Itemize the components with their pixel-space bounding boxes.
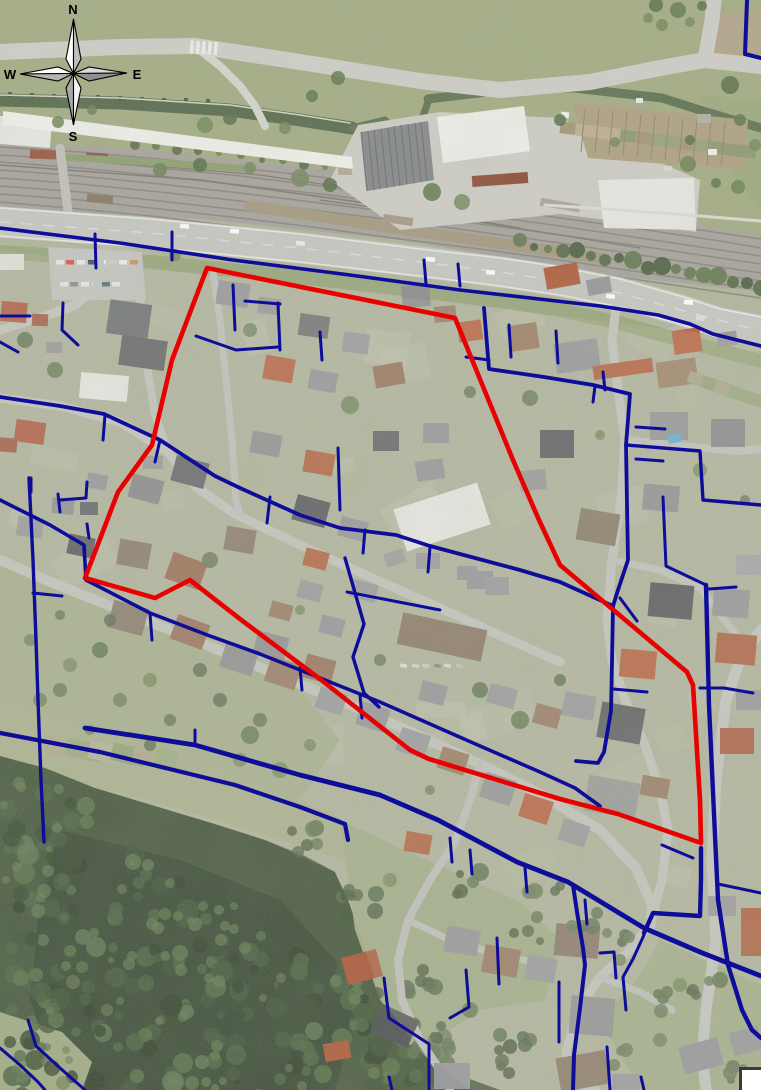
svg-text:E: E [133, 67, 142, 82]
svg-text:W: W [4, 67, 17, 82]
svg-text:N: N [68, 2, 77, 17]
svg-text:S: S [69, 129, 78, 144]
